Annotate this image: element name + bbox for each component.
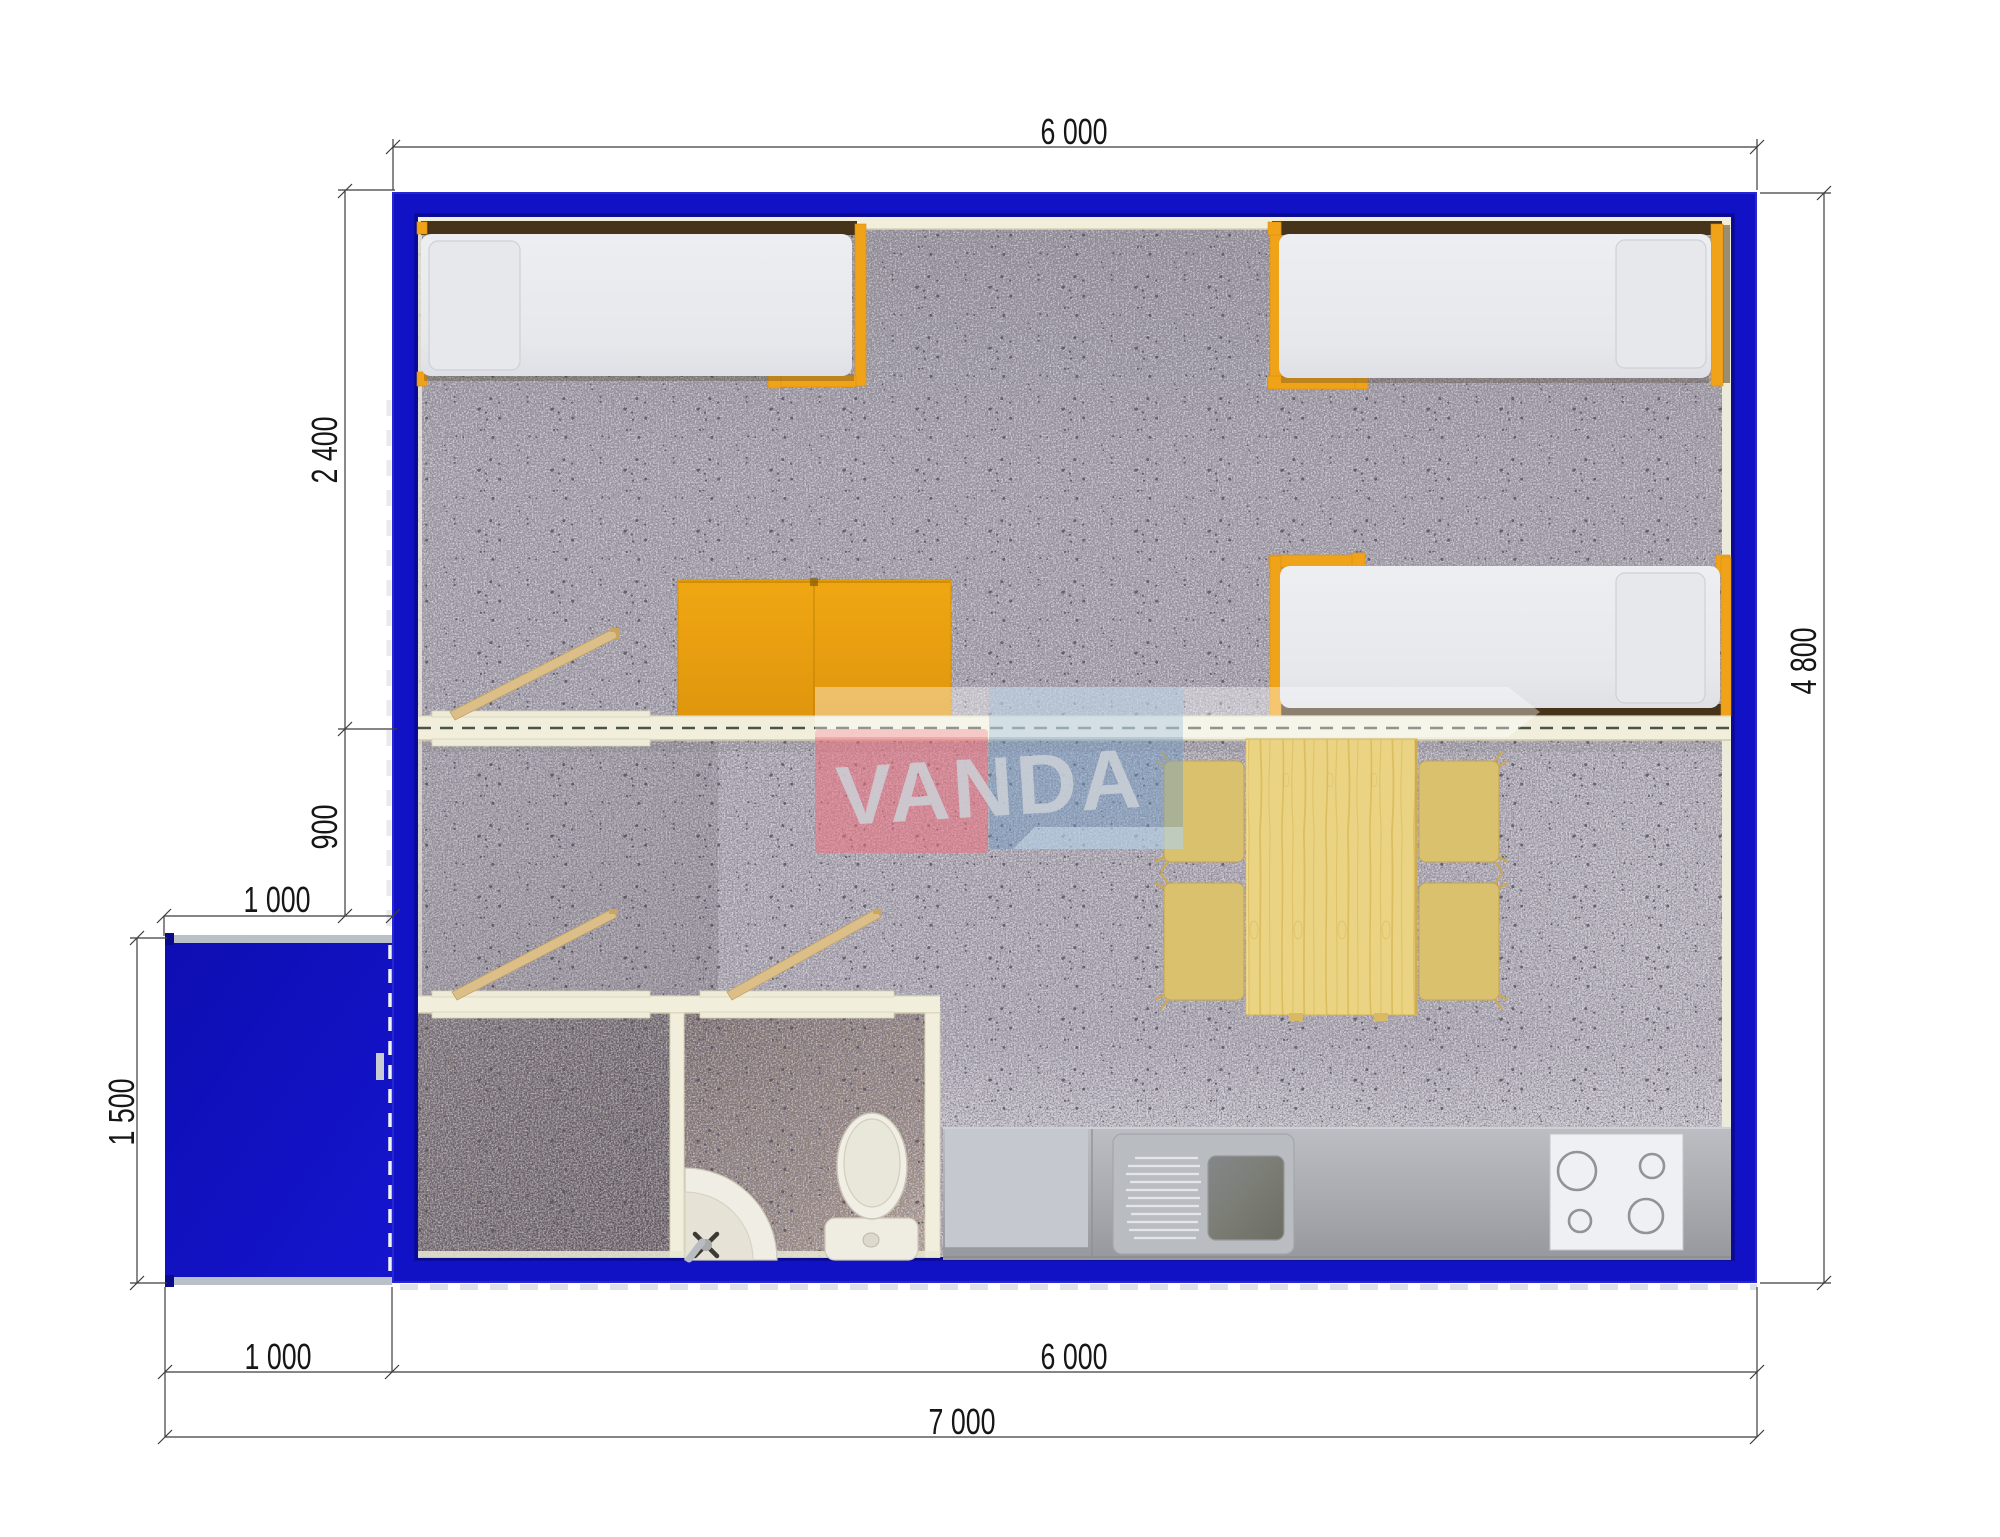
svg-text:2 400: 2 400 [304, 417, 345, 484]
svg-text:4 800: 4 800 [1783, 628, 1824, 695]
svg-text:6 000: 6 000 [1041, 1336, 1108, 1377]
svg-text:1 000: 1 000 [244, 879, 311, 920]
svg-text:VANDA: VANDA [834, 731, 1147, 844]
svg-text:7 000: 7 000 [929, 1401, 996, 1442]
svg-text:1 500: 1 500 [101, 1079, 142, 1146]
svg-text:1 000: 1 000 [245, 1336, 312, 1377]
svg-text:6 000: 6 000 [1041, 111, 1108, 152]
svg-text:900: 900 [304, 805, 345, 850]
